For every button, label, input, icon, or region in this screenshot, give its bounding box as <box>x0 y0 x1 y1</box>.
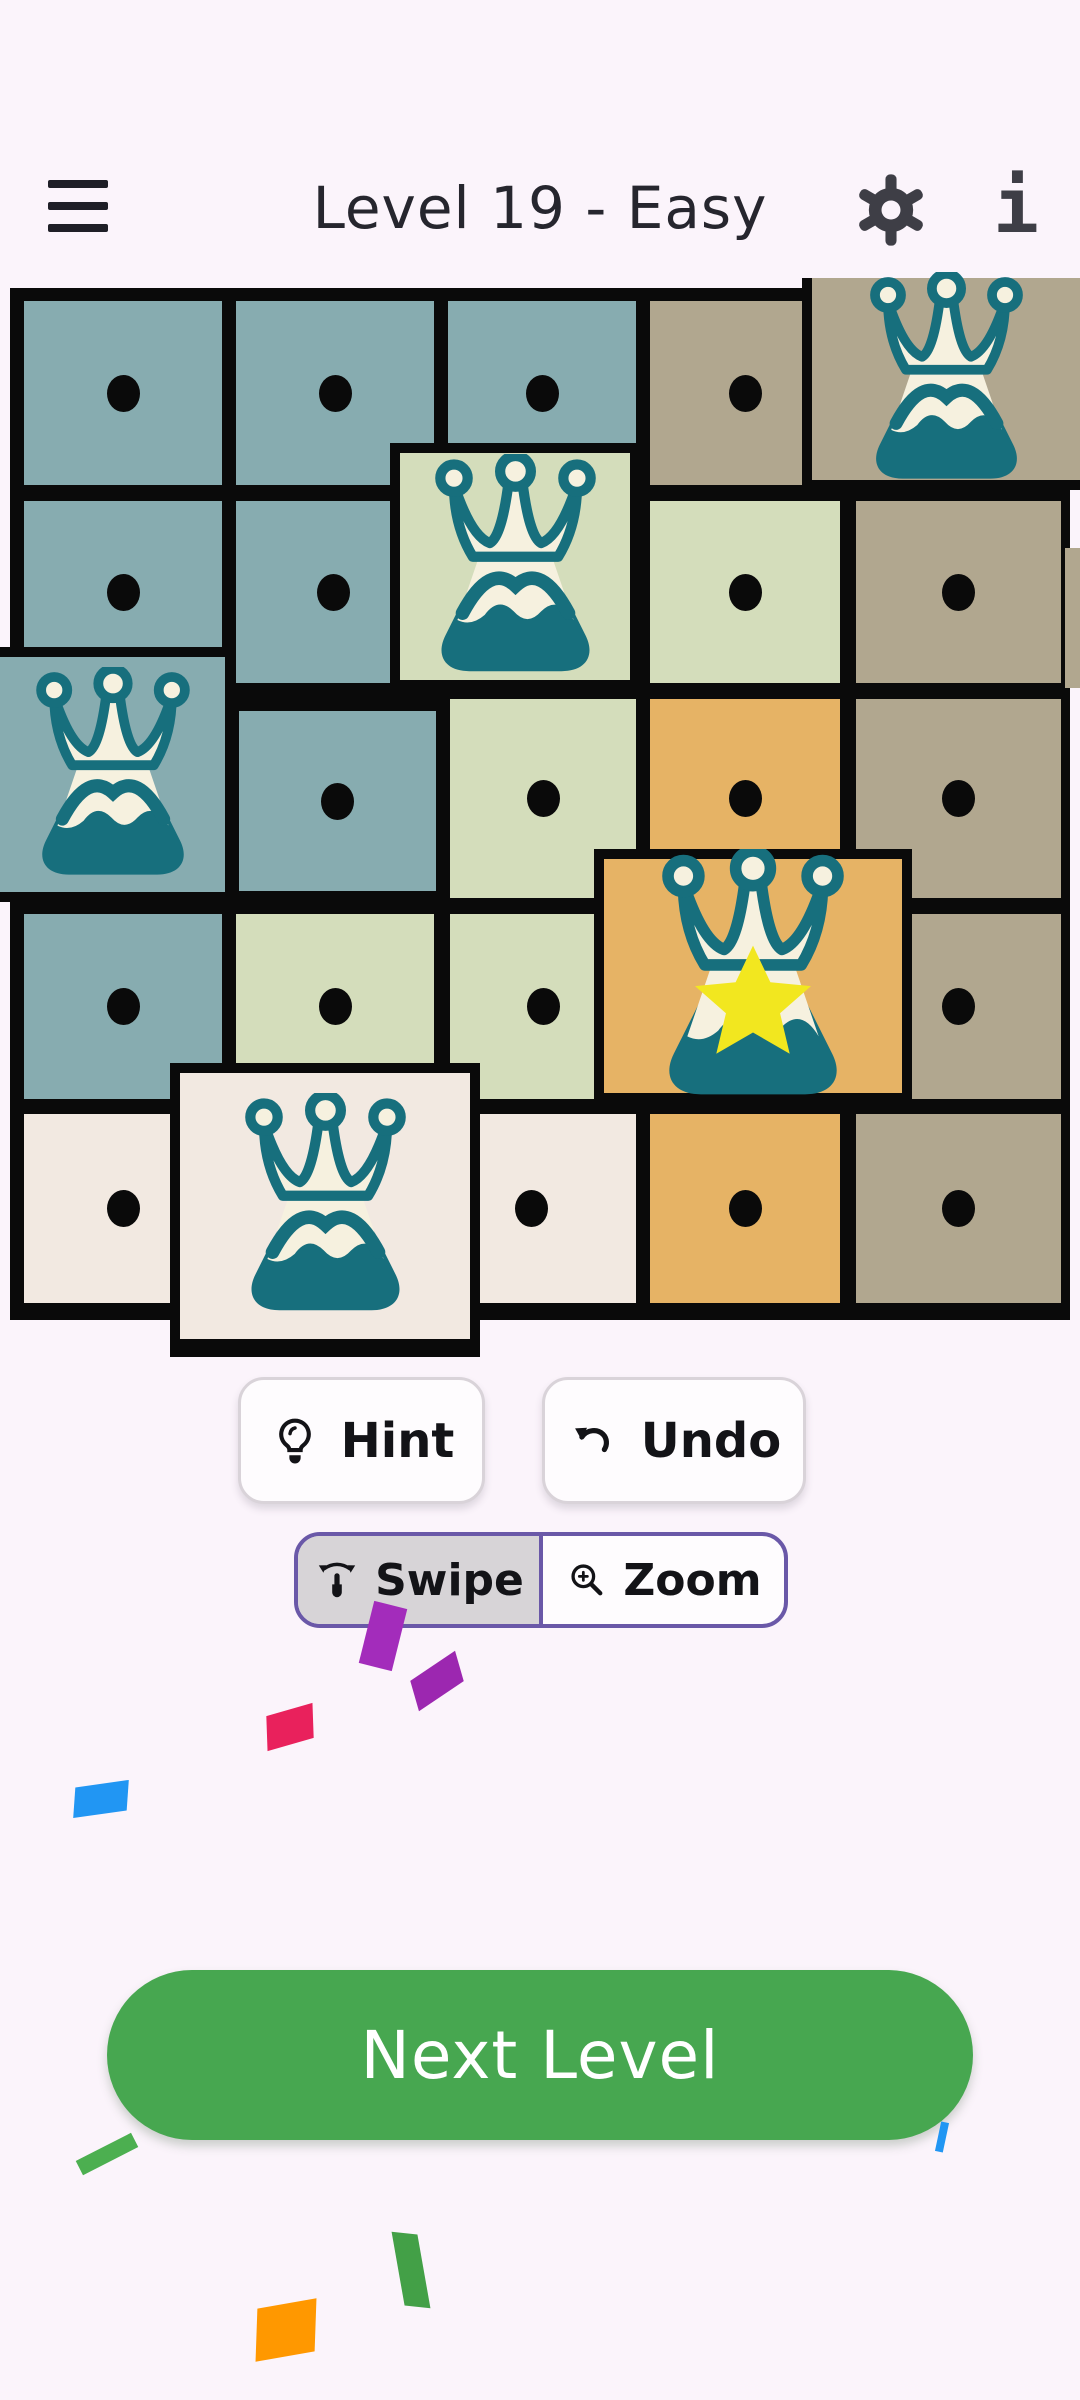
confetti-piece <box>410 1651 463 1712</box>
swipe-gesture-icon <box>313 1556 361 1604</box>
confetti-piece <box>935 2121 949 2152</box>
confetti-piece <box>266 1703 313 1751</box>
confetti-piece <box>76 2133 139 2175</box>
board-cell-r4c4-orange[interactable] <box>594 849 912 1103</box>
dot-marker <box>527 988 560 1025</box>
board-cell-r1c1-blue[interactable] <box>20 297 226 489</box>
dot-marker <box>317 574 350 611</box>
dot-marker <box>526 375 559 412</box>
dot-marker <box>729 1190 762 1227</box>
board-cell-r3c1-blue[interactable] <box>0 647 235 902</box>
dot-marker <box>527 780 560 817</box>
crown-mountain-icon <box>413 454 618 680</box>
crown-mountain-icon <box>223 1093 428 1319</box>
dot-marker <box>107 1190 140 1227</box>
puzzle-board[interactable] <box>0 0 1080 1500</box>
next-level-button[interactable]: Next Level <box>107 1970 973 2140</box>
dot-marker <box>321 783 354 820</box>
zoom-label: Zoom <box>623 1555 761 1606</box>
lightbulb-icon <box>269 1415 321 1467</box>
dot-marker <box>107 375 140 412</box>
dot-marker <box>942 1190 975 1227</box>
confetti-piece <box>256 2298 317 2362</box>
dot-marker <box>107 574 140 611</box>
dot-marker <box>729 574 762 611</box>
dot-marker <box>107 988 140 1025</box>
board-cell-r2c4-green[interactable] <box>646 497 844 687</box>
next-level-label: Next Level <box>361 2017 720 2094</box>
board-cell-r3c2-blue[interactable] <box>235 707 440 895</box>
board-cell-r2c5-taupe[interactable] <box>852 497 1065 687</box>
undo-label: Undo <box>641 1413 781 1469</box>
crown-mountain-star-icon <box>637 849 869 1104</box>
board-cell-r2c3-green[interactable] <box>390 443 640 690</box>
board-cell-r5c4-orange[interactable] <box>646 1110 844 1307</box>
toggle-option-zoom[interactable]: Zoom <box>539 1536 784 1624</box>
swipe-label: Swipe <box>375 1555 524 1606</box>
undo-button[interactable]: Undo <box>542 1377 806 1504</box>
crown-mountain-icon <box>15 667 211 883</box>
game-screen: Level 19 - Easy i <box>0 0 1080 2400</box>
magnifier-plus-icon <box>565 1558 609 1602</box>
dot-marker <box>729 780 762 817</box>
dot-marker <box>729 375 762 412</box>
confetti-piece <box>73 1780 129 1818</box>
dot-marker <box>942 988 975 1025</box>
board-cell-r1c5-taupe[interactable] <box>802 278 1080 490</box>
dot-marker <box>319 988 352 1025</box>
hint-button[interactable]: Hint <box>238 1377 485 1504</box>
hint-label: Hint <box>341 1413 455 1469</box>
dot-marker <box>319 375 352 412</box>
toggle-option-swipe[interactable]: Swipe <box>298 1536 539 1624</box>
dot-marker <box>942 780 975 817</box>
crown-mountain-icon <box>849 272 1044 487</box>
dot-marker <box>942 574 975 611</box>
undo-arrow-icon <box>567 1414 621 1468</box>
confetti-piece <box>392 2232 431 2308</box>
board-cell-r5c2-cream[interactable] <box>170 1063 480 1357</box>
dot-marker <box>515 1190 548 1227</box>
board-cell-r5c5-taupe[interactable] <box>852 1110 1065 1307</box>
mode-toggle: Swipe Zoom <box>294 1532 788 1628</box>
board-cell-r2c5-taupe <box>1065 548 1080 688</box>
